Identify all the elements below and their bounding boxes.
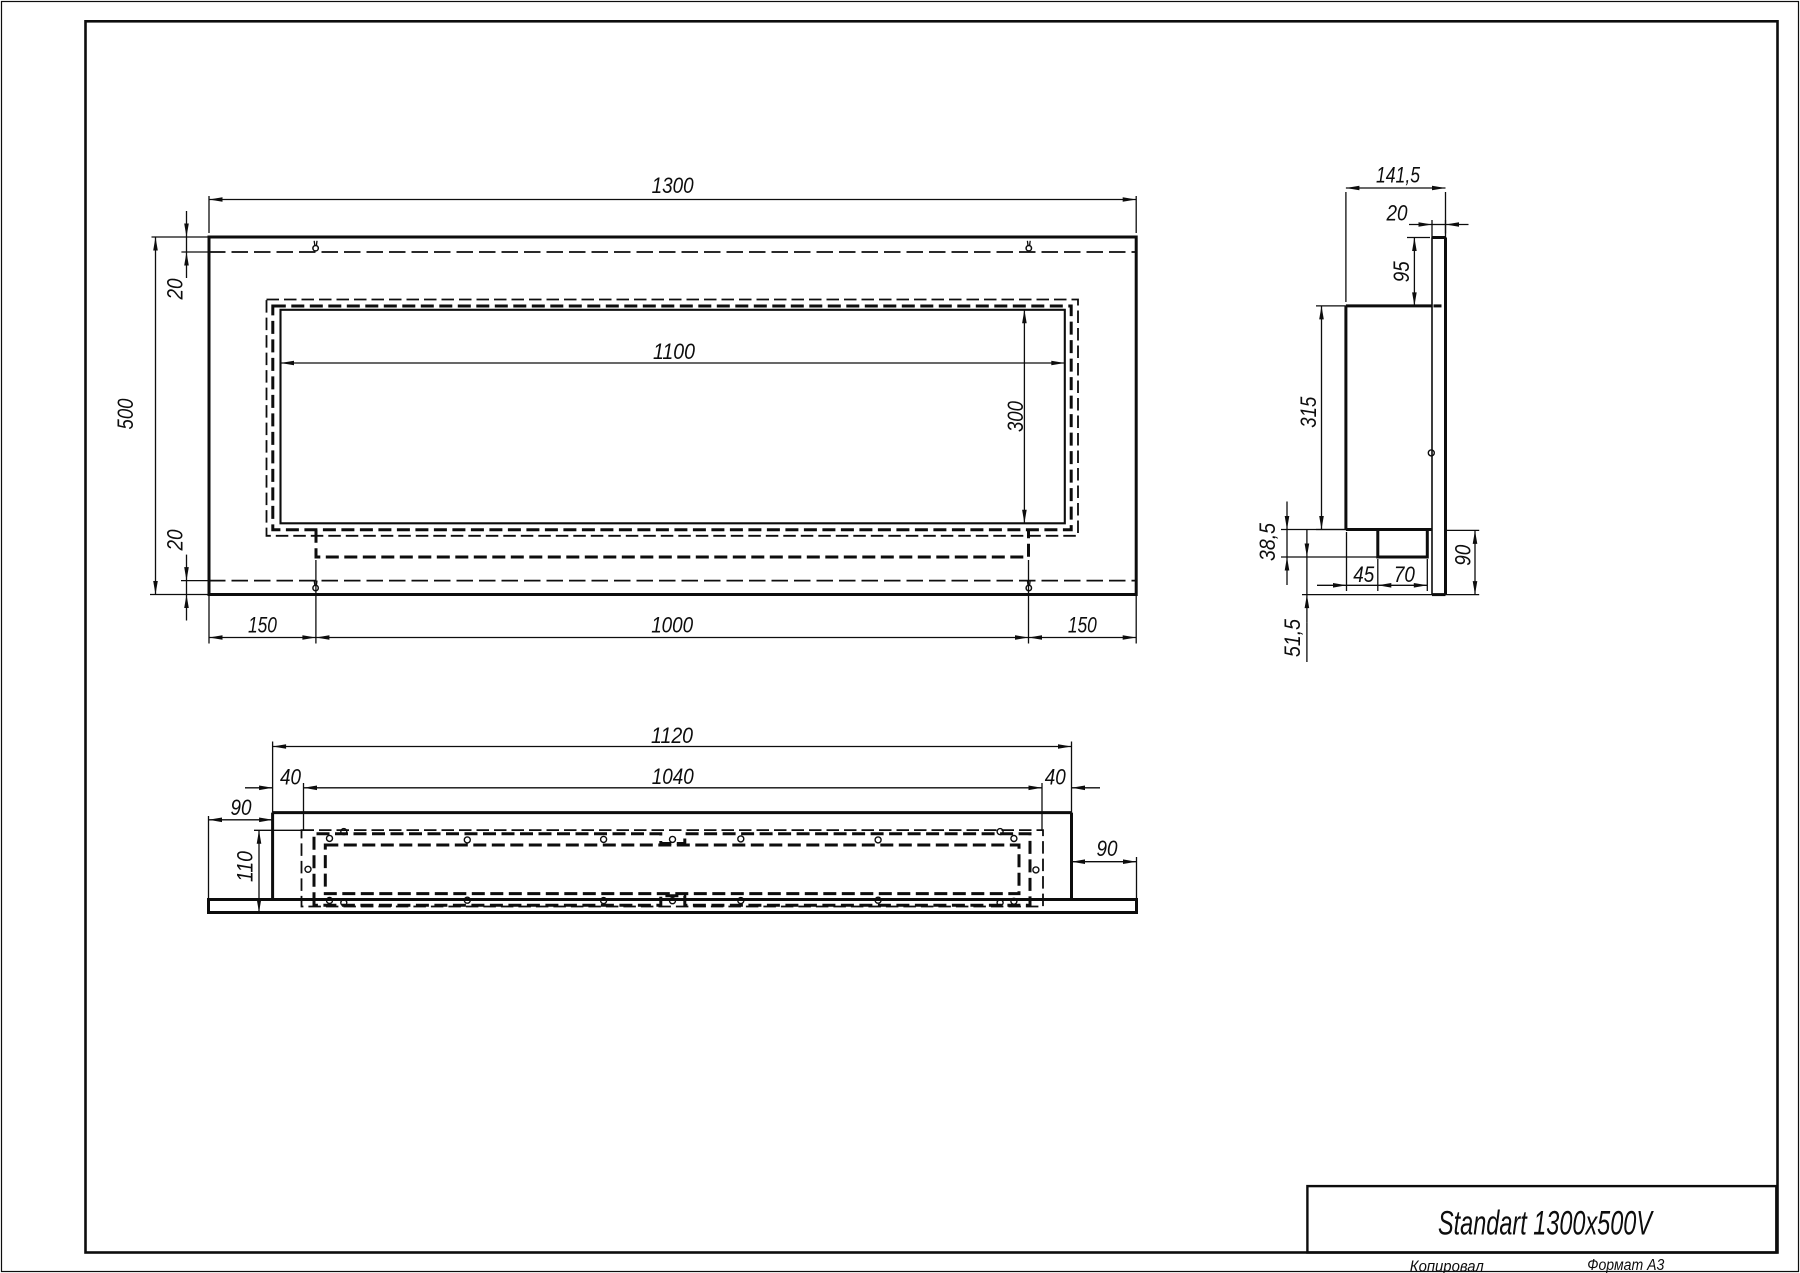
svg-text:1100: 1100: [653, 339, 696, 364]
svg-text:1120: 1120: [651, 723, 694, 748]
svg-text:40: 40: [280, 764, 302, 789]
svg-text:110: 110: [233, 850, 258, 882]
svg-text:1300: 1300: [652, 173, 695, 198]
svg-text:Standart 1300x500V: Standart 1300x500V: [1438, 1205, 1654, 1243]
svg-text:Формат А3: Формат А3: [1587, 1257, 1664, 1273]
svg-text:40: 40: [1045, 764, 1067, 789]
svg-text:Копировал: Копировал: [1410, 1259, 1484, 1273]
svg-text:90: 90: [1450, 544, 1475, 566]
svg-text:1000: 1000: [651, 612, 694, 637]
svg-text:500: 500: [113, 398, 138, 430]
svg-text:150: 150: [248, 612, 278, 637]
svg-text:315: 315: [1296, 396, 1321, 428]
svg-text:1040: 1040: [652, 764, 695, 789]
svg-text:95: 95: [1389, 261, 1414, 283]
svg-text:300: 300: [1003, 400, 1028, 432]
svg-text:45: 45: [1353, 562, 1375, 587]
svg-text:141,5: 141,5: [1376, 163, 1421, 188]
svg-text:20: 20: [162, 529, 187, 552]
svg-text:90: 90: [231, 795, 253, 820]
svg-text:90: 90: [1097, 836, 1119, 861]
svg-text:20: 20: [1386, 201, 1409, 226]
svg-text:20: 20: [163, 278, 188, 301]
svg-text:70: 70: [1394, 562, 1416, 587]
svg-text:150: 150: [1068, 612, 1098, 637]
svg-text:38,5: 38,5: [1255, 522, 1280, 561]
svg-text:51,5: 51,5: [1280, 618, 1305, 657]
